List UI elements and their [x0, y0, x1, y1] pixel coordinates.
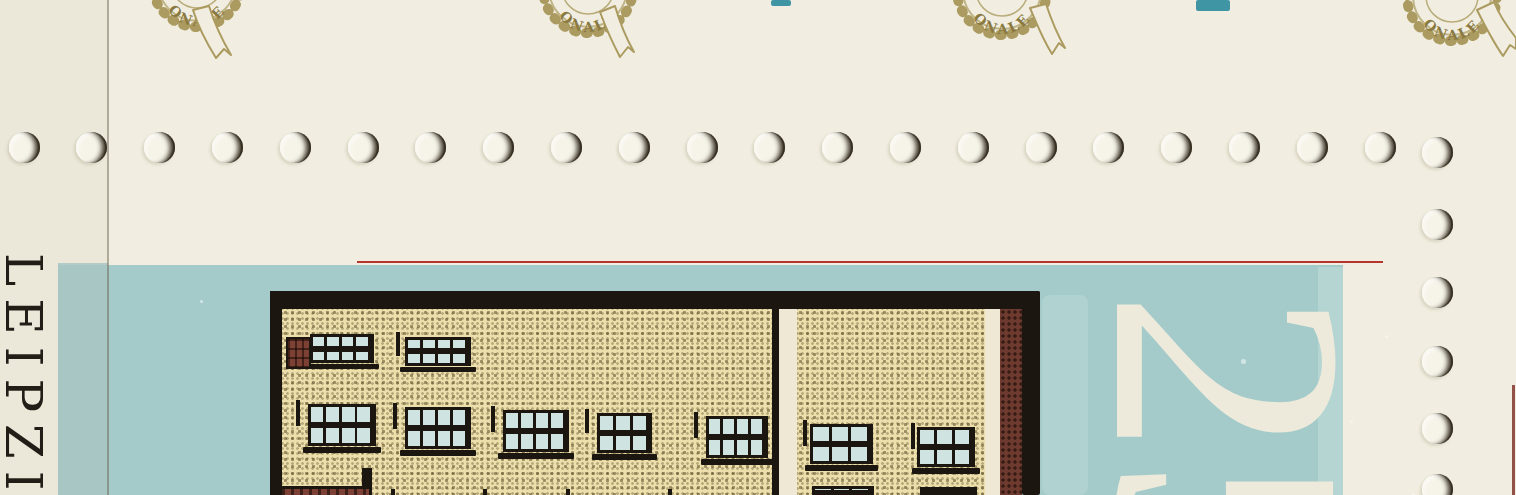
stamp-background-light-edge — [1318, 267, 1343, 495]
perforation-hole — [687, 132, 718, 163]
building-section-edge — [772, 309, 779, 495]
seal-ribbon — [1030, 4, 1065, 54]
stamp-background-left-strip — [58, 263, 108, 495]
perforation-hole — [144, 132, 175, 163]
window-panes — [923, 490, 974, 495]
margin-seals: ONALE — [0, 0, 1516, 70]
window — [405, 407, 471, 449]
perforation-hole — [1161, 132, 1192, 163]
perforation-hole — [1422, 346, 1453, 377]
red-brick-window — [286, 337, 311, 369]
seal-emblem — [957, 0, 1065, 54]
perforation-hole — [1229, 132, 1260, 163]
perforation-hole — [1422, 413, 1453, 444]
facade-tick — [585, 409, 589, 433]
perforation-hole — [76, 132, 107, 163]
facade-tick — [396, 332, 400, 356]
window-sill — [400, 450, 476, 456]
sheet-fold-seam — [107, 0, 109, 495]
window — [812, 486, 874, 495]
perforation-hole — [1026, 132, 1057, 163]
window-panes — [709, 419, 765, 455]
facade-tick — [566, 489, 570, 495]
facade-tick — [296, 400, 300, 426]
stamp-background-light-patch — [1042, 295, 1088, 495]
perforation-hole — [890, 132, 921, 163]
building-maroon-pilaster — [1000, 309, 1022, 495]
seal-emblem — [152, 0, 242, 58]
window — [706, 416, 768, 458]
window-panes — [408, 410, 468, 446]
window — [503, 410, 569, 452]
window-panes — [600, 416, 649, 450]
window — [597, 413, 652, 453]
perforation-hole — [958, 132, 989, 163]
window-sill — [305, 364, 379, 369]
perforation-hole — [212, 132, 243, 163]
perforation-hole — [1365, 132, 1396, 163]
paper-speckles — [200, 300, 203, 303]
window — [308, 404, 376, 446]
window-panes — [815, 489, 871, 495]
perforation-hole — [551, 132, 582, 163]
window-sill — [303, 447, 381, 453]
window-sill — [701, 459, 773, 465]
brick-doorway — [282, 486, 369, 495]
window-panes — [311, 407, 373, 443]
perforation-hole — [619, 132, 650, 163]
perforation-hole — [754, 132, 785, 163]
building-section-gap — [779, 309, 797, 495]
facade-tick — [393, 403, 397, 429]
seal-emblem — [1407, 0, 1516, 56]
window-panes — [506, 413, 566, 449]
window — [810, 424, 873, 464]
window-panes — [813, 427, 870, 461]
facade-tick — [391, 489, 395, 495]
facade-tick — [483, 489, 487, 495]
building-right-edge — [1022, 291, 1040, 495]
perforation-hole — [1422, 277, 1453, 308]
facade-tick — [491, 406, 495, 432]
window-sill — [400, 367, 476, 372]
right-edge-line — [1512, 385, 1515, 495]
facade-tick — [694, 412, 698, 438]
window-sill — [498, 453, 574, 459]
perforation-hole — [415, 132, 446, 163]
facade-tick — [803, 420, 807, 446]
window-sill — [912, 468, 980, 474]
guide-line-red — [357, 261, 1383, 263]
perforation-hole — [1422, 137, 1453, 168]
window-panes — [920, 430, 972, 464]
perforation-hole — [1422, 474, 1453, 495]
perforation-hole — [348, 132, 379, 163]
perforation-hole — [1422, 209, 1453, 240]
window-panes — [313, 337, 371, 360]
perforation-hole — [280, 132, 311, 163]
window-sill — [592, 454, 657, 460]
perforation-hole — [483, 132, 514, 163]
window — [920, 487, 977, 495]
building-left-edge — [270, 291, 282, 495]
perforation-hole — [1297, 132, 1328, 163]
window-panes — [408, 340, 468, 363]
window — [405, 337, 471, 366]
building-section-gap — [985, 309, 1000, 495]
facade-tick — [668, 489, 672, 495]
building-roofline — [270, 291, 1040, 309]
facade-tick — [911, 423, 915, 449]
stamp-sheet-scan: LEIPZIG 25 ONALE — [0, 0, 1516, 495]
window — [917, 427, 975, 467]
seal-emblem — [543, 0, 634, 57]
window — [310, 334, 374, 363]
perforation-hole — [1093, 132, 1124, 163]
window-sill — [805, 465, 878, 471]
perforation-hole — [822, 132, 853, 163]
perforation-hole — [9, 132, 40, 163]
